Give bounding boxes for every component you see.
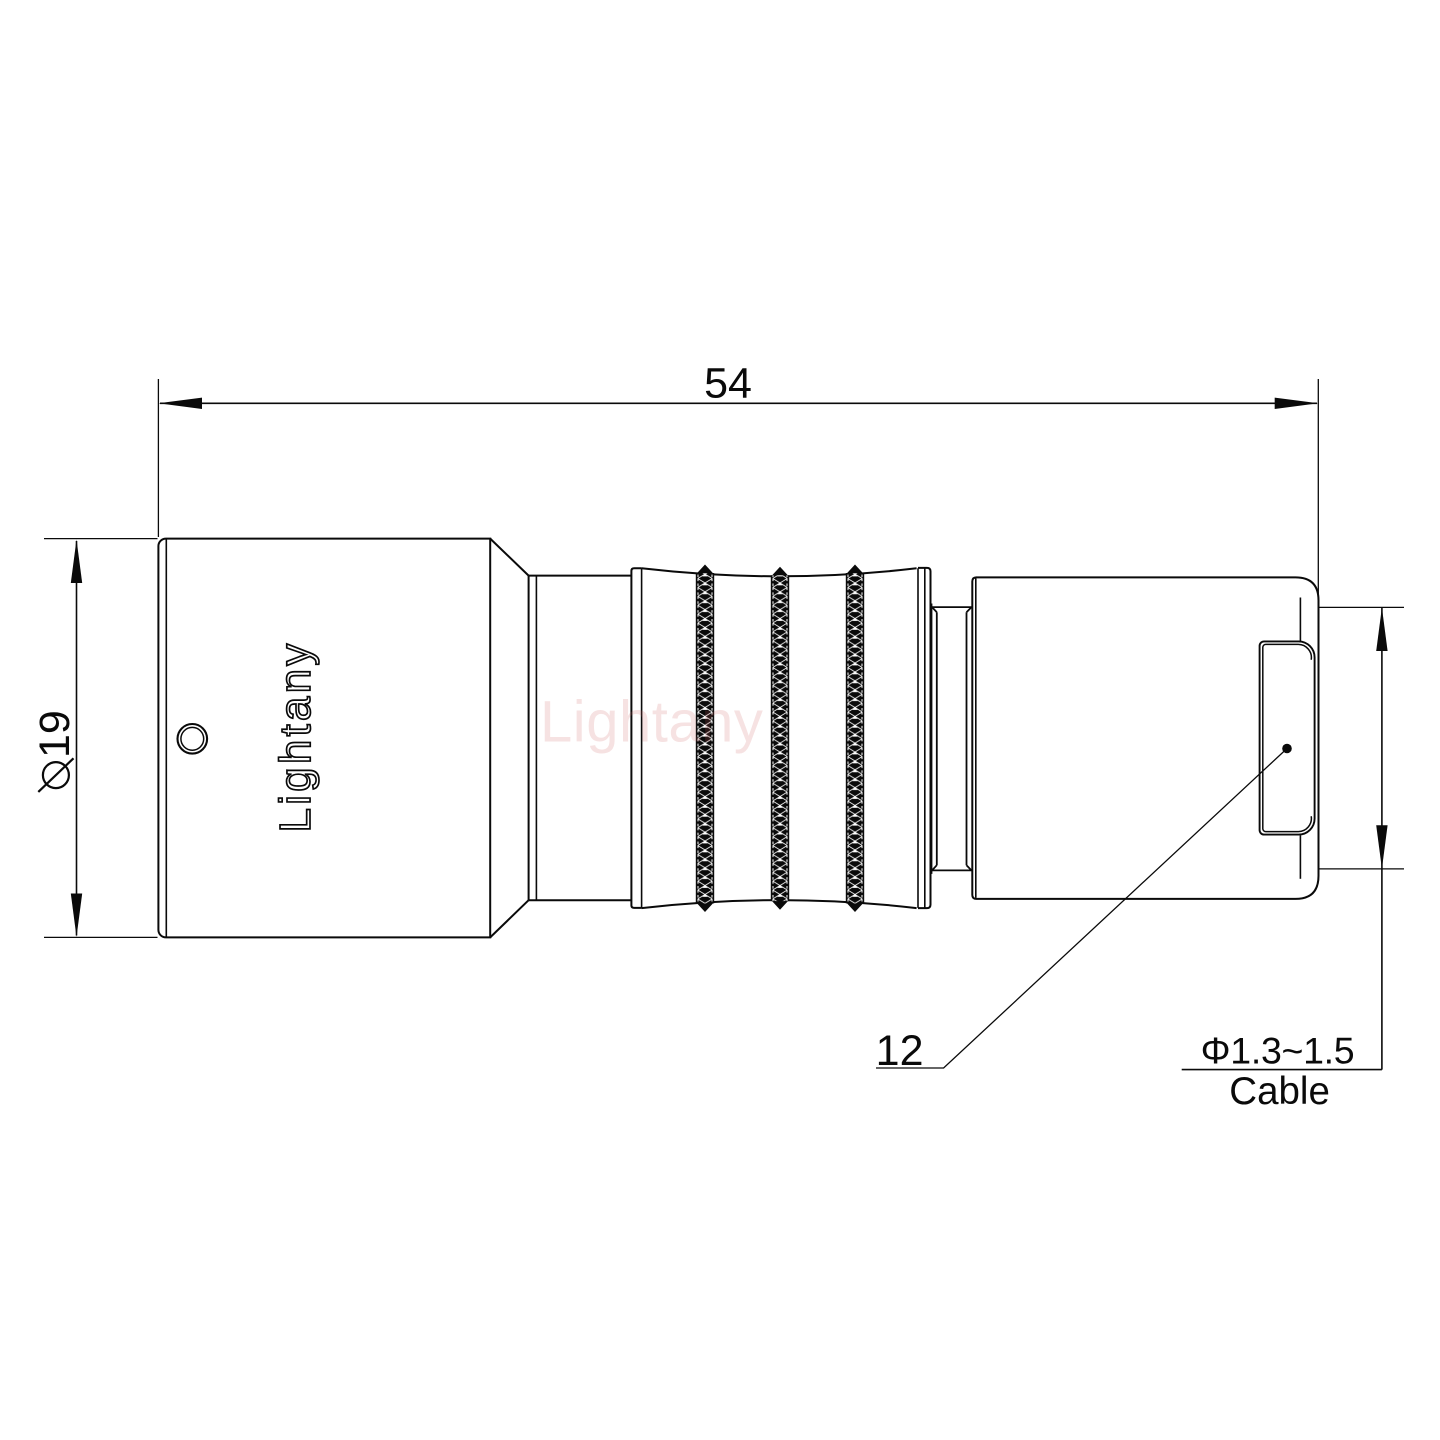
svg-text:Φ1.3~1.5: Φ1.3~1.5 [1201, 1029, 1355, 1071]
svg-text:Lightany: Lightany [540, 690, 763, 755]
svg-text:Lightany: Lightany [271, 641, 320, 833]
svg-text:54: 54 [704, 360, 752, 408]
svg-text:Cable: Cable [1229, 1070, 1330, 1113]
svg-text:19: 19 [31, 710, 79, 758]
svg-text:12: 12 [876, 1027, 924, 1075]
